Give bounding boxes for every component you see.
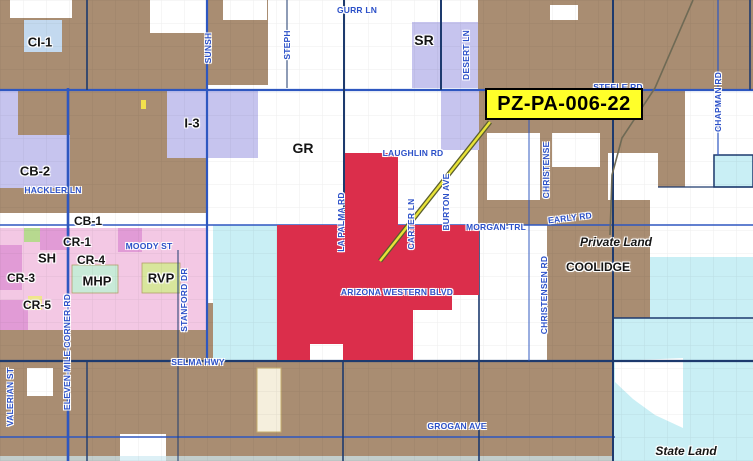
zone-label: CB-1 [74, 215, 102, 227]
street-label-vertical: BURTON AVE [442, 173, 451, 230]
street-label-vertical: ELEVEN-MILE-CORNER-RD [63, 294, 72, 410]
map-labels-layer: CI-1SRI-3GRCB-2CB-1CR-1SHCR-4CR-3MHPRVPC… [0, 0, 753, 461]
case-number-callout: PZ-PA-006-22 [485, 88, 643, 120]
street-label: EARLY RD [548, 211, 593, 225]
street-label-vertical: LA PALMA RD [337, 192, 346, 252]
zone-label: I-3 [184, 117, 199, 130]
zone-label: CR-1 [63, 236, 91, 248]
street-label: GROGAN AVE [427, 422, 486, 431]
street-label: GURR LN [337, 6, 377, 15]
street-label-vertical: CHRISTENSE [542, 142, 551, 199]
zone-label: SH [38, 252, 56, 265]
zone-label: CR-4 [77, 254, 105, 266]
street-label-vertical: CHAPMAN RD [714, 72, 723, 132]
zone-label: GR [293, 141, 314, 155]
zoning-map[interactable]: CI-1SRI-3GRCB-2CB-1CR-1SHCR-4CR-3MHPRVPC… [0, 0, 753, 461]
street-label: SELMA HWY [171, 358, 224, 367]
zone-label: CI-1 [28, 36, 53, 49]
land-ownership-label: Private Land [580, 236, 652, 248]
land-ownership-label: COOLIDGE [566, 261, 630, 273]
zone-label: RVP [148, 272, 175, 285]
street-label: LAUGHLIN RD [383, 149, 444, 158]
case-number-text: PZ-PA-006-22 [497, 93, 630, 116]
land-ownership-label: State Land [655, 445, 716, 457]
street-label-vertical: VALERIAN ST [6, 368, 15, 426]
zone-label: SR [414, 33, 433, 47]
street-label: MORGAN-TRL [466, 223, 526, 232]
street-label-vertical: STEPH [283, 30, 292, 59]
street-label: HACKLER LN [24, 186, 81, 195]
street-label-vertical: CHRISTENSEN RD [540, 256, 549, 334]
street-label-vertical: DESERT LN [462, 30, 471, 80]
street-label-vertical: STANFORD DR [180, 268, 189, 331]
street-label: ARIZONA WESTERN BLVD [341, 288, 453, 297]
street-label-vertical: SUNSH [204, 33, 213, 64]
zone-label: CR-5 [23, 299, 51, 311]
zone-label: CB-2 [20, 165, 50, 178]
street-label: MOODY ST [126, 242, 173, 251]
zone-label: CR-3 [7, 272, 35, 284]
zone-label: MHP [83, 275, 112, 288]
street-label-vertical: CARTER LN [407, 199, 416, 250]
